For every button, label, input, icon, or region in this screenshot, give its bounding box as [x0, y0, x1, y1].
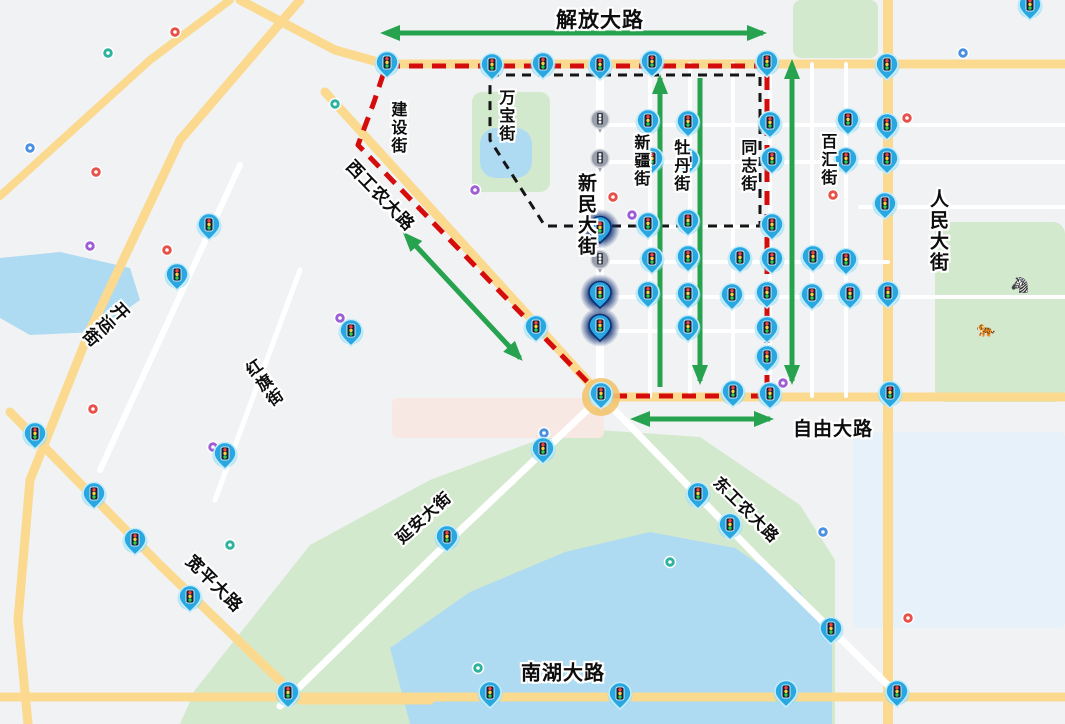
traffic-light-pin[interactable] [800, 284, 825, 311]
zoo-animal-icon: 🐅 [977, 321, 996, 338]
poi-dot-core [542, 431, 546, 435]
poi-dot-core [821, 530, 825, 534]
poi-dot-core [338, 316, 342, 320]
poi-dot-core [91, 407, 95, 411]
inactive-traffic-light-pin[interactable] [591, 111, 609, 134]
traffic-light-pin[interactable] [838, 283, 863, 310]
traffic-light-pin[interactable] [760, 214, 785, 241]
traffic-light-pin[interactable] [375, 52, 400, 79]
zoo-animal-icon: 🦓 [1011, 276, 1030, 294]
traffic-light-pin[interactable] [875, 54, 900, 81]
poi-dot-core [831, 193, 835, 197]
poi-dot-core [211, 445, 215, 449]
traffic-light-pin[interactable] [197, 214, 222, 241]
poi-dot-core [333, 102, 337, 106]
poi-dot-core [94, 170, 98, 174]
traffic-light-pin[interactable] [836, 109, 861, 136]
poi-dot-core [228, 543, 232, 547]
traffic-light-pin[interactable] [760, 148, 785, 175]
traffic-light-pin[interactable] [676, 149, 701, 176]
traffic-light-pin[interactable] [760, 248, 785, 275]
traffic-light-pin[interactable] [676, 316, 701, 343]
map-area-park [793, 0, 878, 58]
traffic-light-pin[interactable] [636, 110, 661, 137]
highlighted-traffic-light-pin[interactable] [580, 209, 620, 249]
map-graphics: 🦓🐅 [0, 0, 1065, 724]
road [0, 0, 230, 196]
poi-dot-core [473, 188, 477, 192]
poi-dot-core [476, 666, 480, 670]
poi-dot-core [106, 51, 110, 55]
traffic-light-pin[interactable] [875, 148, 900, 175]
poi-dot-core [905, 116, 909, 120]
map-area-pink_zone [392, 398, 604, 438]
poi-dot-core [668, 560, 672, 564]
map-canvas[interactable]: 🦓🐅 解放大路建设街万宝街西工农大路新民大街新疆街牡丹街同志街百汇街人民大街开运… [0, 0, 1065, 724]
traffic-light-pin[interactable] [676, 283, 701, 310]
traffic-light-pin[interactable] [834, 148, 859, 175]
red-dashed-boundary [358, 66, 767, 396]
inactive-traffic-light-pin[interactable] [591, 150, 609, 173]
traffic-light-pin[interactable] [878, 382, 903, 409]
traffic-light-pin[interactable] [480, 54, 505, 81]
poi-dot-core [28, 146, 32, 150]
traffic-light-pin[interactable] [339, 320, 364, 347]
highlighted-traffic-light-pin[interactable] [580, 307, 620, 347]
poi-dot-core [906, 616, 910, 620]
traffic-light-pin[interactable] [636, 213, 661, 240]
traffic-light-pin[interactable] [1018, 0, 1043, 20]
traffic-light-pin[interactable] [758, 112, 783, 139]
traffic-light-pin[interactable] [676, 246, 701, 273]
road [100, 165, 240, 470]
road [325, 92, 601, 396]
traffic-light-pin[interactable] [636, 282, 661, 309]
traffic-light-pin[interactable] [755, 346, 780, 373]
poi-dot-core [781, 381, 785, 385]
green-direction-arrow [415, 245, 520, 358]
traffic-light-pin[interactable] [755, 282, 780, 309]
map-area-water [480, 128, 532, 178]
traffic-light-pin[interactable] [755, 317, 780, 344]
traffic-light-pin[interactable] [720, 284, 745, 311]
poi-dot-core [88, 244, 92, 248]
traffic-light-pin[interactable] [755, 51, 780, 78]
traffic-light-pin[interactable] [640, 51, 665, 78]
poi-dot-core [630, 213, 634, 217]
poi-dot-core [611, 195, 615, 199]
traffic-light-pin[interactable] [676, 210, 701, 237]
traffic-light-pin[interactable] [834, 249, 859, 276]
poi-dot-core [173, 30, 177, 34]
poi-dot-core [961, 51, 965, 55]
traffic-light-pin[interactable] [721, 381, 746, 408]
poi-dot-core [165, 248, 169, 252]
inactive-traffic-light-pin[interactable] [591, 251, 609, 274]
traffic-light-pin[interactable] [875, 114, 900, 141]
traffic-light-pin[interactable] [876, 282, 901, 309]
traffic-light-pin[interactable] [758, 383, 783, 410]
traffic-light-pin[interactable] [873, 193, 898, 220]
map-area-park [935, 222, 1065, 402]
traffic-light-pin[interactable] [531, 53, 556, 80]
traffic-light-pin[interactable] [676, 111, 701, 138]
traffic-light-pin[interactable] [213, 443, 238, 470]
traffic-light-pin[interactable] [801, 246, 826, 273]
